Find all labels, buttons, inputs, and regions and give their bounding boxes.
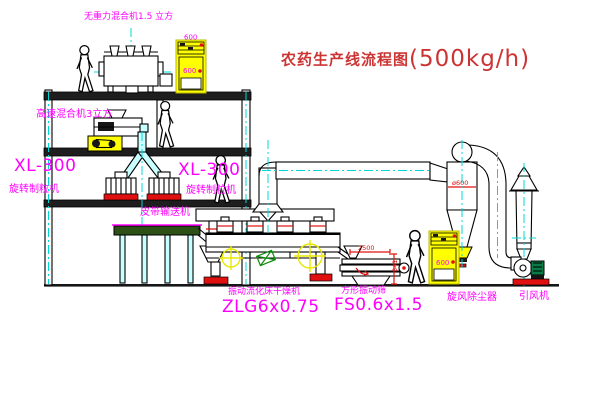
flow-diagram: 600 600 <box>0 0 600 403</box>
label-granulator-left-model: XL-300 <box>14 158 76 175</box>
dim-sieve-height: 341 <box>391 260 399 272</box>
belt-conveyor <box>112 225 210 283</box>
ground-line <box>44 284 559 287</box>
control-cabinet-right <box>429 231 459 284</box>
title-chinese: 农药生产线流程图 <box>281 51 409 69</box>
dim-sieve-length: 2500 <box>358 244 375 252</box>
induced-draft-fan <box>511 257 549 285</box>
label-top-mixer: 无重力混合机1.5 立方 <box>84 13 173 22</box>
label-dryer-name: 振动流化床干燥机 <box>228 288 300 297</box>
label-sieve-model: FS0.6x1.5 <box>334 297 423 314</box>
granulator-left <box>104 172 138 200</box>
granulator-right <box>147 172 181 200</box>
label-mid-mixer: 高速混合机3立方 <box>36 110 112 120</box>
title-capacity: (500kg/h) <box>409 46 530 72</box>
dim-cyclone-diameter: ø600 <box>452 179 468 187</box>
top-mixer <box>94 28 172 93</box>
label-cyclone: 旋风除尘器 <box>447 293 497 303</box>
label-dryer-model: ZLG6x0.75 <box>222 299 320 316</box>
cabinet-right-mark: 600 <box>436 259 449 267</box>
label-granulator-left-name: 旋转制粒机 <box>9 185 59 195</box>
person-figure-sieve <box>407 231 425 283</box>
label-granulator-mid-model: XL-300 <box>178 162 240 179</box>
label-granulator-mid-name: 旋转制粒机 <box>186 186 236 196</box>
svg-text:600: 600 <box>184 33 197 41</box>
cabinet-top-mark: 600 <box>183 67 196 75</box>
vibrating-sieve: 2500 341 <box>338 244 409 285</box>
diagram-title: 农药生产线流程图(500kg/h) <box>281 46 530 72</box>
control-cabinet-top: 600 <box>176 33 206 93</box>
label-fan: 引风机 <box>519 292 549 302</box>
person-figure-top <box>77 46 93 92</box>
label-belt-conveyor: 皮带输送机 <box>140 208 190 218</box>
